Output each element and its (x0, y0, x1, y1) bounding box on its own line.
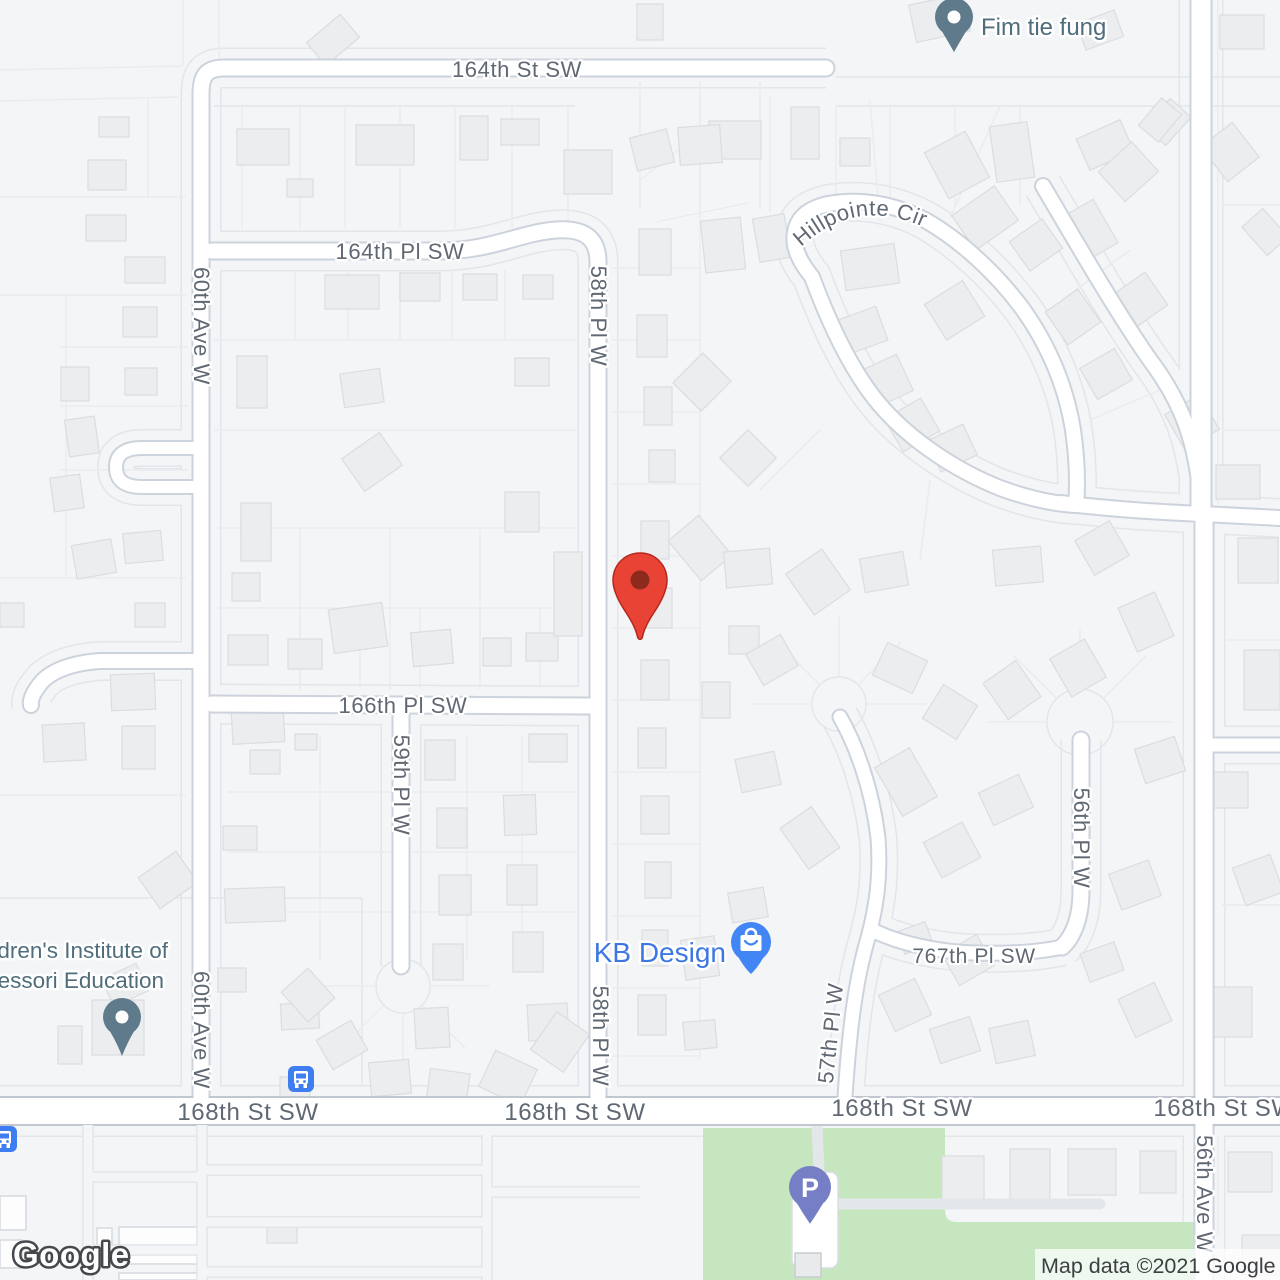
svg-text:164th Pl SW: 164th Pl SW (336, 239, 465, 264)
svg-text:P: P (801, 1173, 819, 1203)
svg-text:Map data ©2021 Google: Map data ©2021 Google (1041, 1254, 1276, 1278)
svg-text:168th St SW: 168th St SW (1153, 1095, 1280, 1122)
svg-text:Google: Google (13, 1236, 130, 1273)
svg-text:60th Ave W: 60th Ave W (189, 267, 214, 385)
svg-text:168th St SW: 168th St SW (831, 1095, 972, 1122)
svg-text:168th St SW: 168th St SW (504, 1099, 645, 1126)
svg-text:KB Design: KB Design (594, 937, 726, 968)
svg-text:56th Pl W: 56th Pl W (1069, 788, 1094, 889)
svg-text:56th Ave W: 56th Ave W (1192, 1135, 1217, 1253)
svg-text:dren's Institute of: dren's Institute of (0, 938, 169, 963)
svg-text:164th St SW: 164th St SW (452, 57, 582, 82)
svg-text:60th Ave W: 60th Ave W (189, 971, 214, 1089)
svg-text:59th Pl W: 59th Pl W (389, 735, 414, 836)
svg-text:168th St SW: 168th St SW (177, 1099, 318, 1126)
svg-text:58th Pl W: 58th Pl W (588, 986, 613, 1087)
svg-text:58th Pl W: 58th Pl W (586, 266, 611, 367)
svg-text:Fim tie fung: Fim tie fung (981, 14, 1106, 41)
svg-text:essori Education: essori Education (0, 968, 164, 993)
svg-text:166th Pl SW: 166th Pl SW (339, 693, 468, 718)
svg-text:767th Pl SW: 767th Pl SW (912, 945, 1035, 968)
